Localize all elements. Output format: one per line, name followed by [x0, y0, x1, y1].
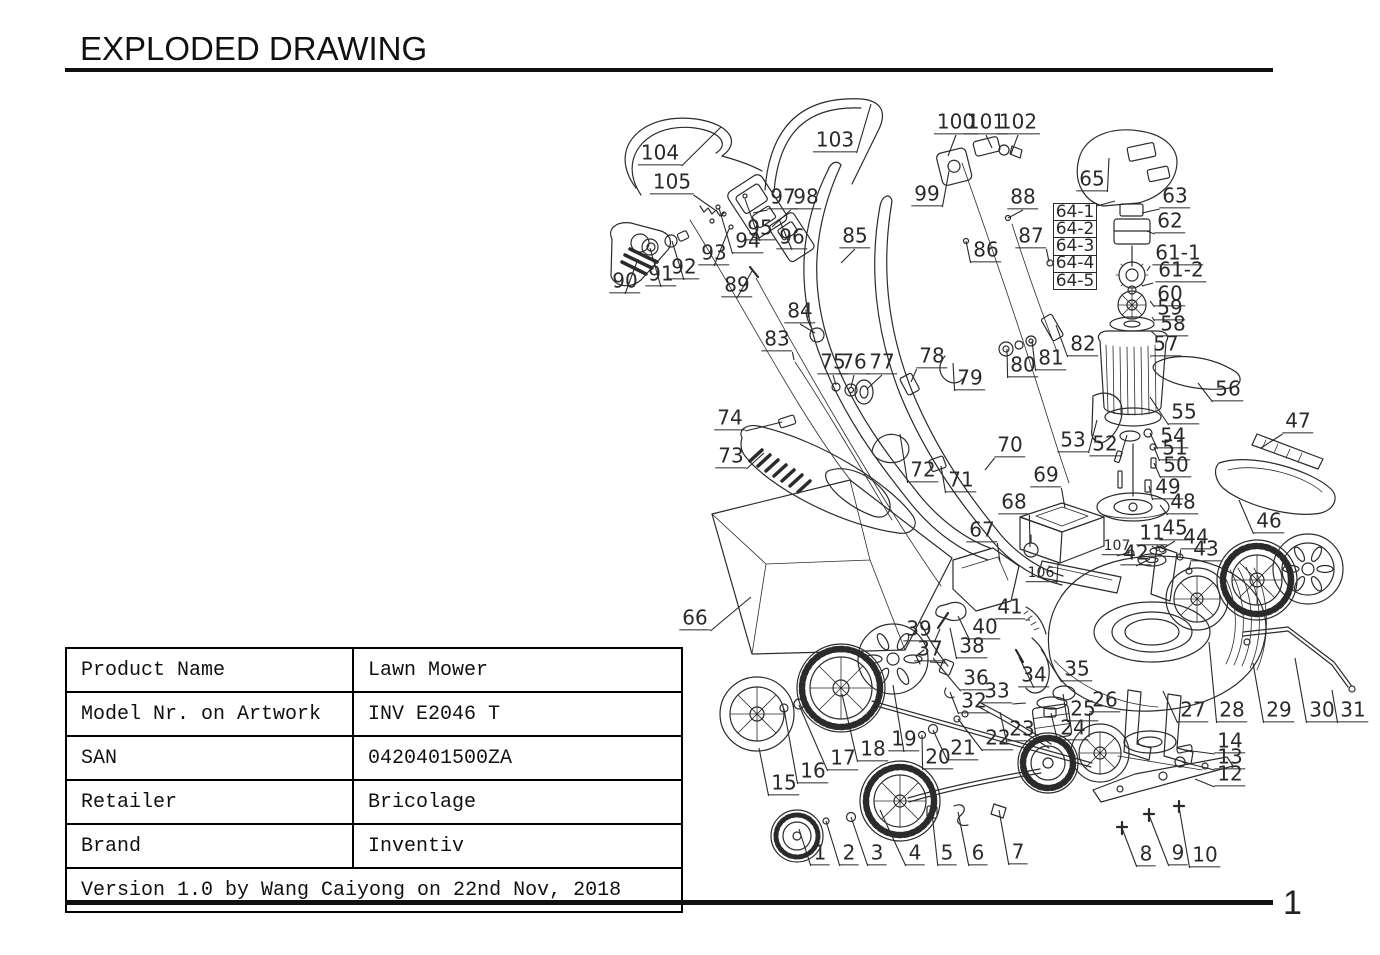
part-label-53: 53 — [1057, 429, 1088, 452]
part-label-86: 86 — [970, 239, 1001, 262]
part-label-106: 106 — [1026, 566, 1057, 582]
part-label-23: 23 — [1006, 718, 1037, 741]
part-label-7: 7 — [1009, 841, 1028, 864]
part-label-80: 80 — [1007, 354, 1038, 377]
part-label-10: 10 — [1189, 844, 1220, 867]
part-label-74: 74 — [714, 407, 745, 430]
part-label-66: 66 — [679, 607, 710, 630]
part-label-98: 98 — [790, 186, 821, 209]
part-label-93: 93 — [698, 242, 729, 265]
part-label-70: 70 — [994, 434, 1025, 457]
part-label-8: 8 — [1137, 843, 1156, 866]
part-label-68: 68 — [998, 491, 1029, 514]
page-number: 1 — [1283, 884, 1302, 923]
part-label-62: 62 — [1154, 210, 1185, 233]
part-label-61-2: 61-2 — [1155, 259, 1206, 282]
part-label-63: 63 — [1159, 185, 1190, 208]
part-label-73: 73 — [715, 445, 746, 468]
table-row: Model Nr. on ArtworkINV E2046 T — [67, 693, 681, 737]
part-label-105: 105 — [650, 171, 694, 194]
table-cell-label: SAN — [67, 737, 354, 779]
part-label-1: 1 — [811, 842, 830, 865]
part-label-46: 46 — [1253, 510, 1284, 533]
part-label-56: 56 — [1212, 378, 1243, 401]
table-row: BrandInventiv — [67, 825, 681, 869]
part-label-21: 21 — [947, 737, 978, 760]
part-label-3: 3 — [868, 842, 887, 865]
part-label-95: 95 — [744, 217, 775, 240]
part-label-76: 76 — [838, 351, 869, 374]
table-cell-label: Retailer — [67, 781, 354, 823]
part-label-64-5: 64-5 — [1053, 272, 1097, 291]
part-label-107: 107 — [1102, 539, 1133, 555]
part-label-60: 60 — [1154, 283, 1185, 306]
part-label-65: 65 — [1076, 168, 1107, 191]
part-label-35: 35 — [1061, 658, 1092, 681]
part-label-78: 78 — [916, 345, 947, 368]
part-label-83: 83 — [761, 328, 792, 351]
table-row: SAN0420401500ZA — [67, 737, 681, 781]
footer-rule — [65, 900, 1273, 905]
table-row: RetailerBricolage — [67, 781, 681, 825]
table-cell-value: Lawn Mower — [354, 649, 681, 691]
part-label-72: 72 — [907, 459, 938, 482]
part-label-104: 104 — [638, 142, 682, 165]
table-cell-value: INV E2046 T — [354, 693, 681, 735]
part-label-90: 90 — [609, 270, 640, 293]
part-label-71: 71 — [945, 469, 976, 492]
part-label-47: 47 — [1282, 410, 1313, 433]
part-label-26: 26 — [1089, 689, 1120, 712]
part-label-92: 92 — [668, 256, 699, 279]
part-label-37: 37 — [914, 638, 945, 661]
part-label-36: 36 — [960, 667, 991, 690]
part-label-82: 82 — [1067, 333, 1098, 356]
part-label-30: 30 — [1306, 699, 1337, 722]
part-label-57: 57 — [1150, 333, 1181, 356]
table-row: Product NameLawn Mower — [67, 649, 681, 693]
part-label-31: 31 — [1337, 699, 1368, 722]
part-label-27: 27 — [1177, 699, 1208, 722]
table-cell-value: Inventiv — [354, 825, 681, 867]
part-label-77: 77 — [866, 351, 897, 374]
part-label-9: 9 — [1169, 842, 1188, 865]
part-label-5: 5 — [938, 842, 957, 865]
part-label-81: 81 — [1035, 347, 1066, 370]
part-label-52: 52 — [1089, 433, 1120, 456]
part-label-2: 2 — [840, 842, 859, 865]
document-page: EXPLODED DRAWING — [0, 0, 1380, 955]
part-label-54: 54 — [1157, 425, 1188, 448]
table-cell-label: Product Name — [67, 649, 354, 691]
part-label-6: 6 — [969, 842, 988, 865]
table-cell-label: Brand — [67, 825, 354, 867]
part-label-19: 19 — [888, 728, 919, 751]
part-label-84: 84 — [784, 300, 815, 323]
part-label-49: 49 — [1152, 476, 1183, 499]
table-cell-label: Model Nr. on Artwork — [67, 693, 354, 735]
part-label-102: 102 — [996, 111, 1040, 134]
table-cell-value: 0420401500ZA — [354, 737, 681, 779]
part-label-55: 55 — [1168, 401, 1199, 424]
part-label-79: 79 — [954, 367, 985, 390]
info-table: Product NameLawn MowerModel Nr. on Artwo… — [65, 647, 683, 913]
part-label-45: 45 — [1159, 517, 1190, 540]
part-label-67: 67 — [966, 519, 997, 542]
part-label-85: 85 — [839, 225, 870, 248]
part-label-40: 40 — [969, 616, 1000, 639]
part-label-29: 29 — [1263, 699, 1294, 722]
part-label-96: 96 — [776, 226, 807, 249]
part-label-99: 99 — [911, 183, 942, 206]
part-label-39: 39 — [903, 618, 934, 641]
part-label-4: 4 — [906, 842, 925, 865]
part-label-15: 15 — [768, 772, 799, 795]
part-label-41: 41 — [994, 596, 1025, 619]
part-label-103: 103 — [813, 129, 857, 152]
part-label-87: 87 — [1015, 225, 1046, 248]
table-cell-value: Bricolage — [354, 781, 681, 823]
part-label-69: 69 — [1030, 464, 1061, 487]
part-label-16: 16 — [797, 760, 828, 783]
part-label-89: 89 — [721, 274, 752, 297]
part-label-34: 34 — [1018, 664, 1049, 687]
part-label-28: 28 — [1216, 699, 1247, 722]
part-label-88: 88 — [1007, 186, 1038, 209]
part-label-18: 18 — [857, 738, 888, 761]
part-label-14: 14 — [1214, 730, 1245, 753]
part-label-17: 17 — [827, 747, 858, 770]
